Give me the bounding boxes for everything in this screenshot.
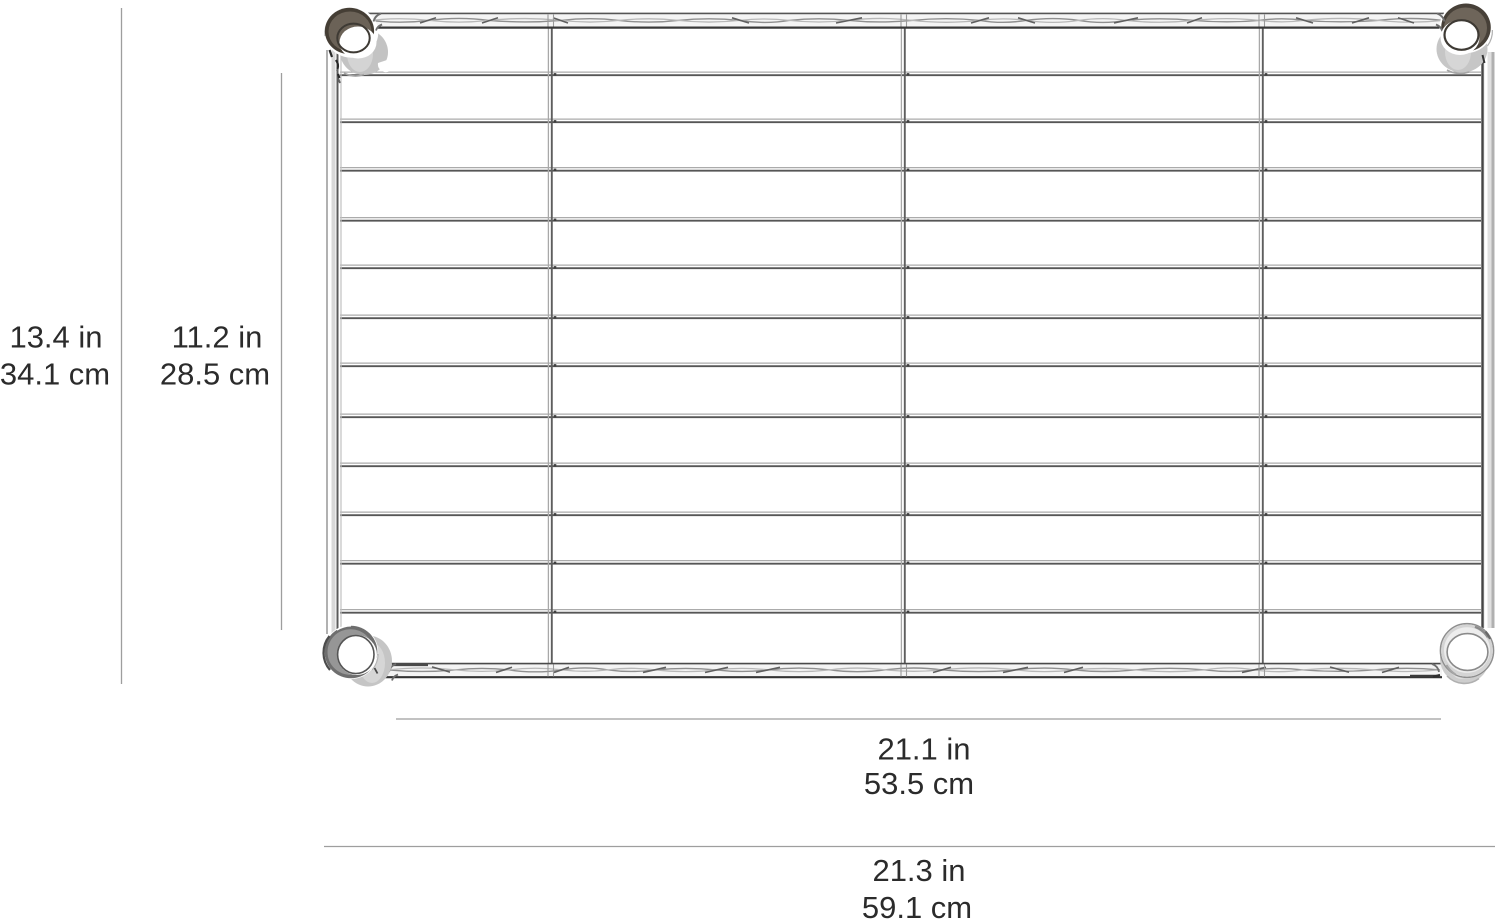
svg-text:11.2 in: 11.2 in <box>172 320 263 355</box>
svg-text:28.5 cm: 28.5 cm <box>160 357 270 392</box>
svg-text:34.1 cm: 34.1 cm <box>0 357 110 392</box>
svg-text:13.4 in: 13.4 in <box>9 320 102 355</box>
svg-text:21.1 in: 21.1 in <box>877 732 970 767</box>
svg-text:21.3 in: 21.3 in <box>872 853 965 888</box>
svg-text:59.1 cm: 59.1 cm <box>862 890 972 920</box>
svg-text:53.5 cm: 53.5 cm <box>864 766 974 801</box>
